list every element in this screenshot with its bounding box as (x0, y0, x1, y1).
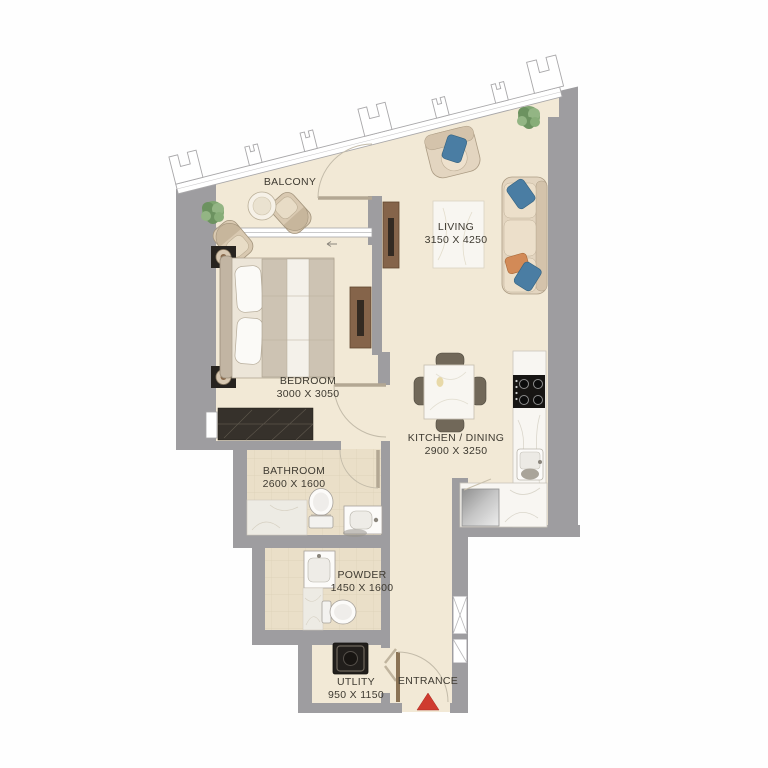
left-wall-window (206, 412, 217, 438)
wall-balcony-living (368, 196, 382, 245)
bedroom-label: BEDROOM 3000 X 3050 (277, 375, 340, 401)
bed-pillow-1 (234, 265, 263, 313)
bathroom-name: BATHROOM (263, 465, 326, 478)
living-name: LIVING (425, 221, 488, 234)
wall-bathroom-top (176, 441, 341, 450)
bedroom-tv-unit (350, 287, 371, 348)
living-plant (517, 106, 540, 129)
balcony-name: BALCONY (264, 176, 316, 189)
kitchen-dining-name: KITCHEN / DINING (408, 432, 504, 445)
bathroom-vanity (343, 506, 382, 537)
shafts (453, 596, 467, 663)
mullion-post-icon (491, 82, 508, 104)
bedroom-dims: 3000 X 3050 (277, 388, 340, 401)
balcony-round-table (248, 192, 276, 220)
fridge (462, 489, 499, 526)
wall-right-top (559, 87, 578, 122)
bed-headboard (220, 256, 233, 378)
shaft-box-1 (453, 596, 467, 634)
living-dims: 3150 X 4250 (425, 234, 488, 247)
wall-utility-left (298, 638, 312, 713)
wall-powder-left (252, 545, 265, 640)
bed-pillow-2 (234, 317, 263, 365)
bedroom-rug (218, 408, 313, 440)
wall-bathroom-left (233, 441, 247, 545)
powder-label: POWDER 1450 X 1600 (331, 569, 394, 595)
utility-name: UTLITY (328, 676, 384, 689)
bed-runner (287, 259, 309, 377)
bedroom-name: BEDROOM (277, 375, 340, 388)
bed (220, 256, 334, 378)
washing-machine (333, 643, 368, 674)
kitchen-dining-label: KITCHEN / DINING 2900 X 3250 (408, 432, 504, 458)
mullion-post-icon (245, 144, 262, 166)
wall-bedroom-living (372, 243, 382, 355)
wall-powder-bottom (252, 630, 390, 645)
wall-bottom (298, 703, 402, 713)
wall-right (548, 117, 578, 530)
bathroom-dims: 2600 X 1600 (263, 478, 326, 491)
powder-name: POWDER (331, 569, 394, 582)
bathroom-label: BATHROOM 2600 X 1600 (263, 465, 326, 491)
utility-label: UTLITY 950 X 1150 (328, 676, 384, 702)
kitchen-counter-bottom (460, 479, 547, 527)
floor-plan-canvas: BALCONY LIVING 3150 X 4250 BEDROOM 3000 … (0, 0, 768, 768)
wall-bedroom-hall-step (378, 352, 390, 385)
powder-tile-strip (303, 588, 323, 630)
shaft-box-2 (453, 639, 467, 663)
living-tv-unit (383, 202, 399, 268)
balcony-plant (201, 201, 224, 224)
mullion-post-icon (300, 130, 317, 152)
kitchen-sink (517, 449, 543, 480)
powder-toilet (322, 600, 356, 624)
shower-floor (247, 500, 307, 535)
balcony-label: BALCONY (264, 176, 316, 189)
stove (513, 375, 545, 408)
entrance-label: ENTRANCE (398, 675, 458, 688)
dining-table (424, 365, 474, 419)
utility-dims: 950 X 1150 (328, 689, 384, 702)
living-sofa (502, 177, 547, 294)
entrance-name: ENTRANCE (398, 675, 458, 688)
mullion-post-icon (432, 97, 449, 119)
bathroom-toilet (309, 489, 333, 529)
powder-dims: 1450 X 1600 (331, 582, 394, 595)
floor-plan-drawing (0, 0, 768, 768)
kitchen-dining-dims: 2900 X 3250 (408, 445, 504, 458)
living-label: LIVING 3150 X 4250 (425, 221, 488, 247)
mullion-post-icon (527, 55, 564, 93)
